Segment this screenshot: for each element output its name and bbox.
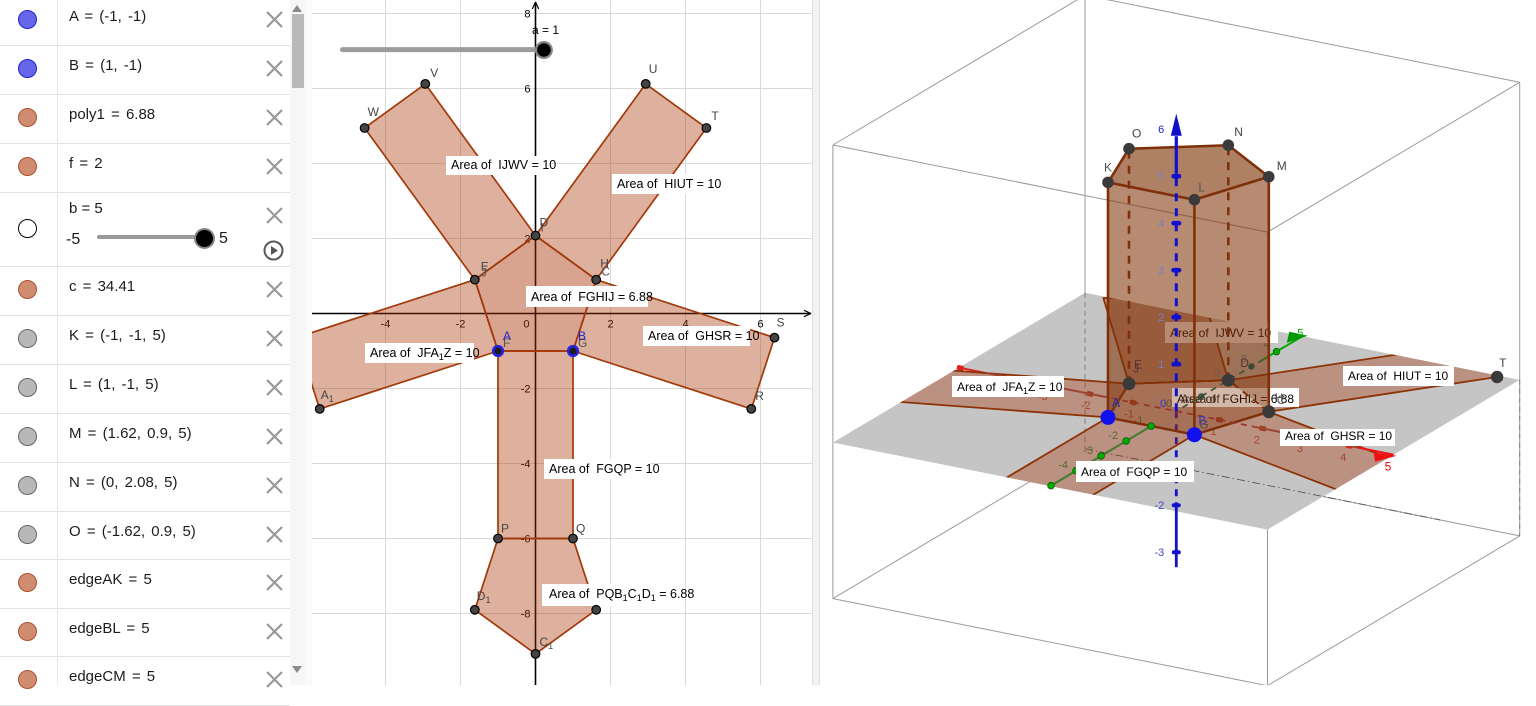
svg-text:Area of HIUT = 10: Area of HIUT = 10	[1348, 369, 1448, 383]
svg-text:E: E	[1134, 358, 1142, 372]
svg-text:K: K	[1104, 160, 1112, 174]
svg-text:Q: Q	[576, 522, 585, 536]
svg-text:Area of JFA1Z = 10: Area of JFA1Z = 10	[957, 380, 1063, 396]
svg-text:5: 5	[1158, 171, 1164, 183]
svg-text:Area of JFA1Z = 10: Area of JFA1Z = 10	[370, 346, 480, 362]
svg-text:Area of PQB1C1D1 = 6.88: Area of PQB1C1D1 = 6.88	[549, 587, 694, 603]
svg-text:3: 3	[1158, 265, 1164, 277]
svg-text:R: R	[755, 389, 764, 403]
svg-text:D: D	[1240, 356, 1249, 370]
svg-text:1: 1	[1158, 359, 1164, 371]
svg-text:L: L	[1198, 181, 1205, 195]
svg-text:Area of FGHIJ = 6.88: Area of FGHIJ = 6.88	[531, 290, 653, 304]
svg-text:Area of IJWV = 10: Area of IJWV = 10	[451, 158, 556, 172]
svg-text:M: M	[1277, 159, 1287, 173]
svg-text:a = 1: a = 1	[532, 23, 559, 37]
svg-text:-2: -2	[1155, 500, 1165, 512]
svg-text:U: U	[649, 62, 658, 76]
svg-text:6: 6	[1158, 124, 1164, 136]
svg-text:C: C	[1277, 393, 1286, 407]
svg-text:T: T	[1499, 356, 1507, 370]
svg-text:Area of FGQP = 10: Area of FGQP = 10	[1081, 465, 1187, 479]
svg-text:-3: -3	[1155, 547, 1165, 559]
svg-text:S: S	[777, 316, 785, 330]
svg-text:P: P	[501, 522, 509, 536]
svg-text:6: 6	[524, 84, 530, 96]
svg-text:A: A	[503, 329, 511, 343]
svg-text:5: 5	[1385, 460, 1392, 474]
svg-text:0: 0	[1160, 398, 1166, 410]
svg-text:Area of GHSR = 10: Area of GHSR = 10	[1285, 429, 1392, 443]
svg-text:2: 2	[1214, 367, 1220, 379]
svg-text:4: 4	[1158, 218, 1164, 230]
svg-text:D: D	[540, 216, 549, 230]
svg-text:G: G	[1199, 418, 1208, 432]
svg-text:N: N	[1234, 125, 1243, 139]
svg-text:Area of GHSR = 10: Area of GHSR = 10	[648, 329, 760, 343]
svg-text:Area of FGQP = 10: Area of FGQP = 10	[549, 462, 660, 476]
svg-text:5: 5	[1297, 327, 1303, 339]
svg-text:B: B	[578, 329, 586, 343]
svg-text:8: 8	[524, 9, 530, 21]
svg-text:V: V	[430, 66, 438, 80]
svg-text:Area of HIUT = 10: Area of HIUT = 10	[617, 177, 721, 191]
svg-text:H: H	[600, 257, 609, 271]
svg-text:F: F	[1113, 399, 1120, 413]
svg-text:W: W	[368, 105, 380, 119]
svg-text:2: 2	[1158, 312, 1164, 324]
svg-text:E: E	[481, 260, 489, 274]
svg-text:O: O	[1132, 127, 1141, 141]
svg-text:T: T	[711, 109, 719, 123]
